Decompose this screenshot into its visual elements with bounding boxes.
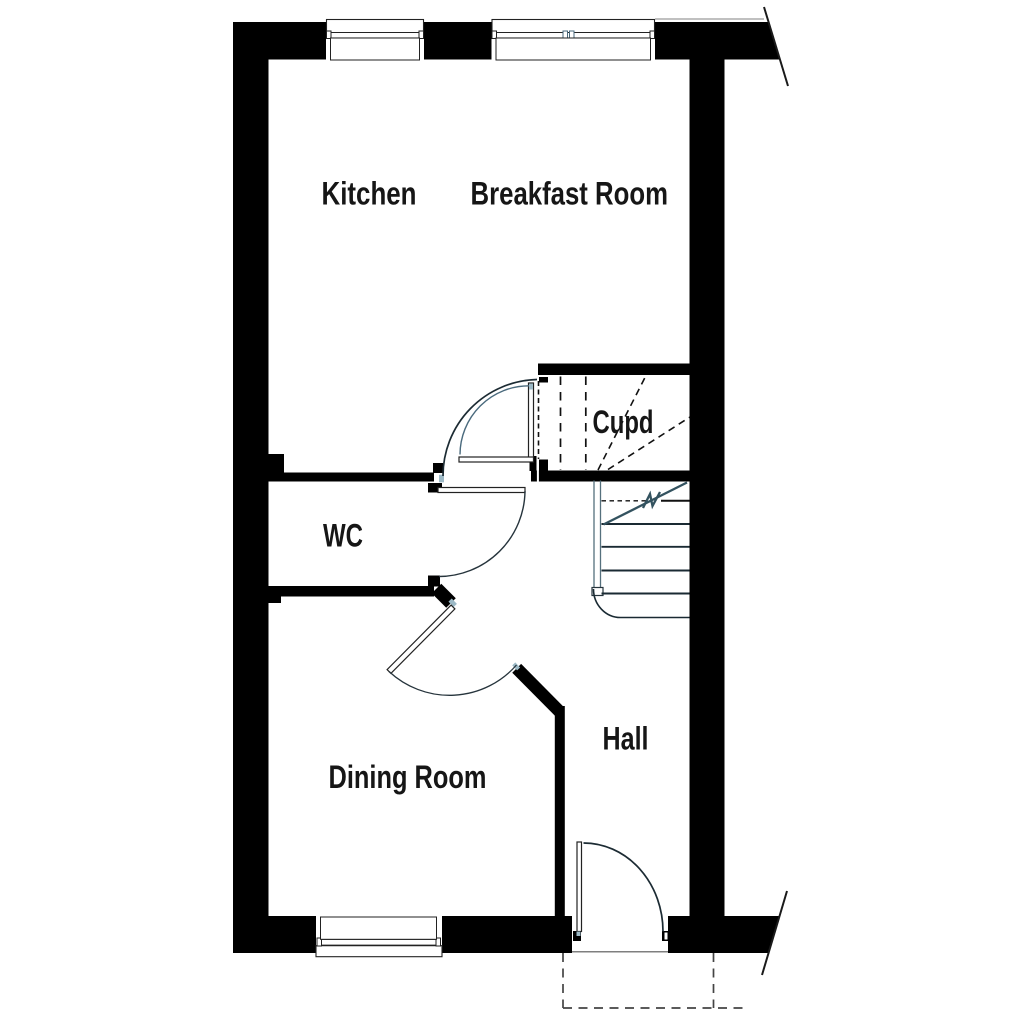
svg-text:Hall: Hall [603,721,649,757]
svg-text:Dining Room: Dining Room [329,759,487,795]
svg-text:WC: WC [323,517,363,553]
svg-text:Kitchen: Kitchen [322,176,417,212]
svg-text:Cupd: Cupd [593,404,654,440]
svg-text:Breakfast Room: Breakfast Room [471,176,669,212]
